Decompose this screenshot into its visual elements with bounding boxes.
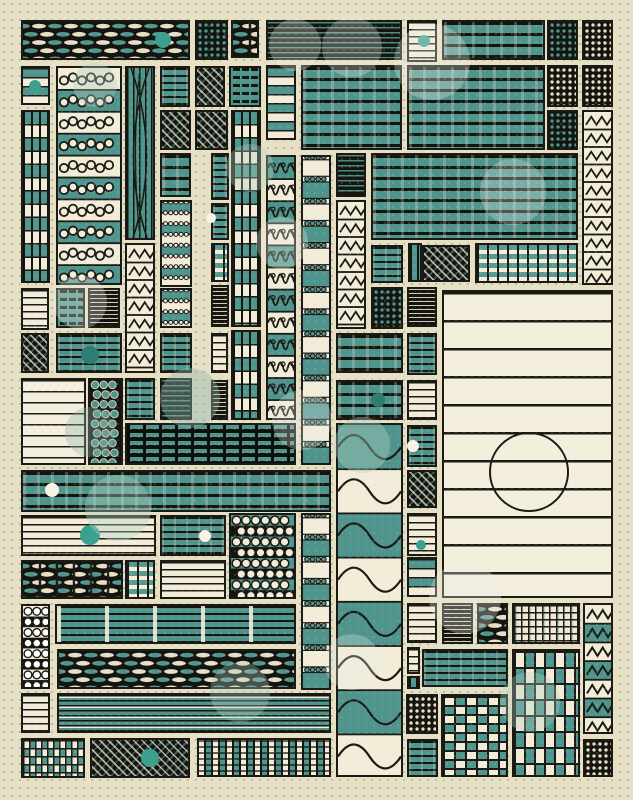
pattern-tile-vb	[21, 110, 50, 283]
pattern-tile-hc	[21, 693, 50, 733]
pattern-tile-hd	[195, 110, 228, 150]
pattern-tile-ck	[441, 694, 508, 777]
pattern-tile-hth	[266, 65, 296, 140]
accent-circle	[80, 525, 100, 545]
pattern-tile-wf	[475, 243, 578, 283]
pattern-tile-dd	[547, 20, 578, 60]
pattern-tile-hfd	[407, 287, 437, 327]
accent-circle	[45, 483, 59, 497]
pattern-tile-hfd	[88, 288, 120, 328]
pattern-tile-hd	[21, 333, 49, 373]
pattern-tile-hfdt	[336, 153, 366, 197]
pattern-tile-braid	[477, 603, 508, 644]
pattern-tile-hts	[301, 65, 402, 150]
pattern-tile-hfdt	[160, 378, 192, 420]
pattern-tile-ddc	[582, 20, 613, 60]
pattern-tile-ht	[407, 333, 437, 375]
pattern-tile-hc	[211, 333, 228, 373]
pattern-tile-chain	[301, 155, 331, 465]
pattern-tile-hts	[407, 65, 545, 150]
pattern-tile-vt	[407, 676, 420, 689]
pattern-tile-hc	[407, 380, 437, 420]
pattern-tile-ht	[371, 245, 403, 283]
pattern-tile-bigwave	[336, 423, 403, 777]
pattern-tile-cgrid	[88, 378, 123, 465]
pattern-tile-chainS	[160, 200, 192, 287]
pattern-tile-fine	[57, 693, 331, 733]
pattern-tile-hts	[442, 20, 545, 60]
pattern-tile-vb	[231, 330, 261, 420]
accent-circle	[29, 80, 41, 92]
pattern-tile-vbd	[197, 738, 331, 777]
art-canvas	[0, 0, 633, 800]
pattern-tile-zz	[125, 243, 155, 373]
pattern-tile-ht	[160, 66, 190, 107]
pattern-tile-zz	[582, 110, 613, 285]
pattern-tile-hfd	[211, 285, 229, 327]
pattern-tile-hfd	[442, 603, 473, 644]
pattern-tile-hts	[21, 470, 331, 512]
pattern-tile-hcs	[21, 378, 86, 465]
pattern-tile-hc	[160, 560, 226, 599]
pattern-tile-ckt	[512, 649, 580, 777]
pattern-tile-hd	[160, 110, 191, 150]
pattern-tile-basket	[21, 560, 123, 599]
pattern-tile-hd	[195, 66, 225, 107]
pattern-tile-ht	[160, 333, 192, 373]
outlined-circle	[489, 432, 569, 512]
pattern-tile-hc	[407, 603, 437, 643]
pattern-tile-hts	[160, 153, 191, 197]
pattern-tile-hc	[407, 647, 420, 674]
accent-circle	[407, 440, 419, 452]
pattern-tile-ht	[125, 378, 155, 420]
pattern-tile-hth	[407, 557, 437, 597]
pattern-tile-hts	[371, 153, 578, 240]
pattern-tile-zz	[336, 200, 366, 329]
pattern-tile-braid	[57, 649, 296, 689]
pattern-tile-wfd	[125, 423, 296, 465]
pattern-tile-dd	[371, 287, 403, 329]
pattern-tile-ht	[211, 153, 229, 200]
accent-circle	[206, 213, 216, 223]
pattern-tile-dd	[195, 20, 228, 60]
accent-circle	[155, 32, 171, 48]
pattern-tile-wavc	[266, 155, 296, 420]
accent-circle	[371, 393, 385, 407]
pattern-tile-hd	[422, 245, 470, 282]
pattern-tile-ddc	[583, 739, 613, 777]
pattern-tile-hd	[407, 470, 437, 508]
pattern-tile-loops	[56, 66, 122, 285]
pattern-tile-rip	[229, 66, 261, 107]
pattern-tile-ht	[160, 515, 226, 556]
pattern-tile-chainS	[160, 288, 192, 328]
accent-circle	[141, 749, 159, 767]
accent-circle	[418, 35, 430, 47]
pattern-tile-hts	[336, 380, 403, 420]
pattern-tile-st	[55, 604, 296, 644]
pattern-tile-ddc	[547, 65, 578, 107]
pattern-tile-hd	[90, 738, 190, 778]
pattern-tile-ht	[407, 739, 438, 777]
pattern-tile-chain	[301, 513, 331, 690]
pattern-tile-pearlsc	[21, 604, 50, 689]
pattern-tile-xhc	[512, 603, 580, 644]
pattern-tile-wf	[211, 243, 229, 282]
pattern-tile-vb	[231, 110, 261, 327]
pattern-tile-vt	[408, 243, 422, 282]
pattern-tile-vcurve	[125, 66, 155, 240]
pattern-tile-hc	[21, 288, 49, 330]
pattern-tile-basket	[231, 20, 259, 58]
pattern-tile-cks	[21, 738, 85, 778]
pattern-tile-hts	[336, 333, 403, 373]
accent-circle	[81, 346, 99, 364]
pattern-tile-dd	[547, 110, 578, 150]
pattern-tile-ddc	[582, 65, 613, 107]
pattern-tile-wf	[125, 560, 155, 599]
accent-circle	[416, 540, 426, 550]
pattern-tile-ht	[422, 649, 508, 687]
pattern-tile-rip	[56, 288, 85, 328]
pattern-tile-zzb	[583, 603, 613, 734]
pattern-tile-hfd	[211, 380, 228, 420]
accent-circle	[199, 530, 211, 542]
pattern-tile-hfdt	[266, 20, 402, 60]
pattern-tile-pearls	[229, 513, 296, 599]
pattern-tile-ddc	[406, 694, 438, 734]
